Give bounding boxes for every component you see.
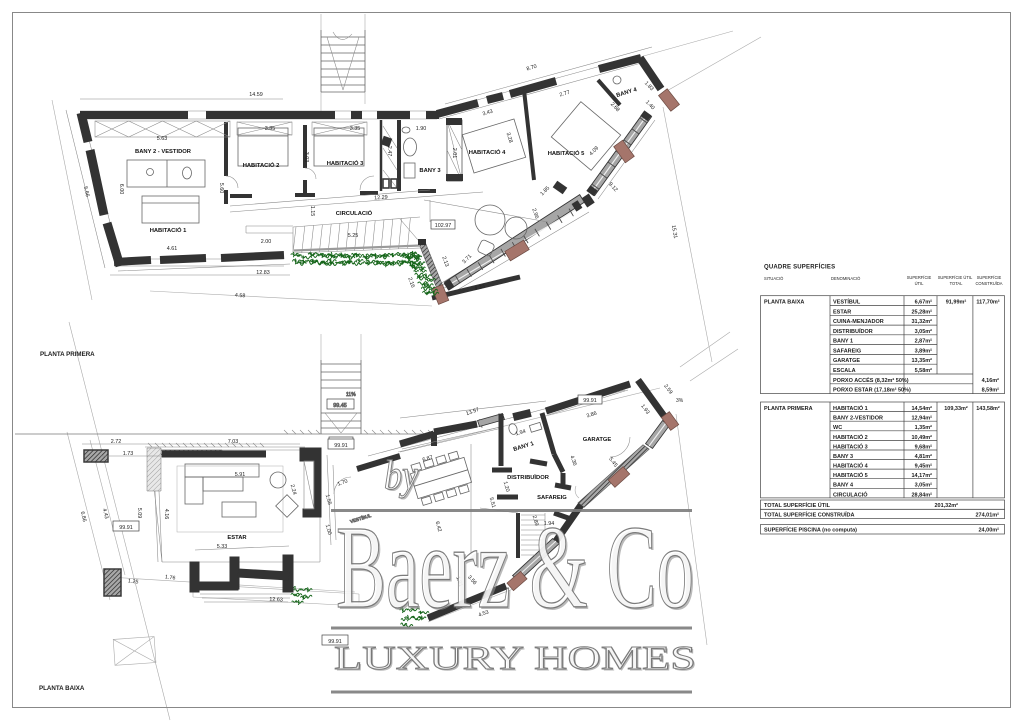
svg-text:14,54m²: 14,54m² <box>912 405 933 412</box>
svg-text:BANY 2-VESTIDOR: BANY 2-VESTIDOR <box>833 416 883 422</box>
svg-text:BANY 2 - VESTIDOR: BANY 2 - VESTIDOR <box>135 149 192 155</box>
svg-text:12.83: 12.83 <box>256 270 270 276</box>
svg-text:GARATGE: GARATGE <box>583 437 612 443</box>
svg-text:6.00: 6.00 <box>118 184 124 195</box>
svg-text:5,58m²: 5,58m² <box>915 367 933 374</box>
svg-text:PLANTA BAIXA: PLANTA BAIXA <box>39 685 85 692</box>
svg-text:1.90: 1.90 <box>416 126 427 132</box>
svg-text:BANY 4: BANY 4 <box>833 483 854 489</box>
svg-text:13,35m²: 13,35m² <box>912 357 933 364</box>
svg-text:TOTAL SUPERFÍCIE ÚTIL: TOTAL SUPERFÍCIE ÚTIL <box>764 501 831 509</box>
svg-text:PLANTA BAIXA: PLANTA BAIXA <box>764 300 804 306</box>
svg-text:14.59: 14.59 <box>249 92 263 98</box>
svg-text:2.72: 2.72 <box>111 439 122 445</box>
svg-text:3.03: 3.03 <box>303 152 309 163</box>
svg-text:4.58: 4.58 <box>235 293 246 300</box>
svg-text:12.29: 12.29 <box>374 195 388 202</box>
svg-text:8,59m²: 8,59m² <box>982 387 1000 394</box>
svg-text:9,68m²: 9,68m² <box>915 443 933 450</box>
svg-text:1.73: 1.73 <box>123 451 134 457</box>
svg-text:12,94m²: 12,94m² <box>912 415 933 422</box>
svg-text:TOTAL SUPERFÍCIE CONSTRUÏDA: TOTAL SUPERFÍCIE CONSTRUÏDA <box>764 510 854 518</box>
svg-text:WC: WC <box>833 425 842 431</box>
svg-text:99.45: 99.45 <box>333 403 347 409</box>
svg-text:GARATGE: GARATGE <box>833 358 860 364</box>
svg-text:3,05m²: 3,05m² <box>915 328 933 335</box>
svg-text:99.91: 99.91 <box>583 398 597 404</box>
svg-text:HABITACIÓ 4: HABITACIÓ 4 <box>469 148 506 156</box>
svg-text:PORXO ESTAR (17,18m² 50%): PORXO ESTAR (17,18m² 50%) <box>833 387 911 394</box>
svg-text:Baerz & Co: Baerz & Co <box>336 501 694 633</box>
svg-text:3%: 3% <box>676 398 684 404</box>
svg-text:PLANTA PRIMERA: PLANTA PRIMERA <box>764 406 813 412</box>
svg-text:HABITACIÓ 3: HABITACIÓ 3 <box>833 442 868 450</box>
svg-text:4,81m²: 4,81m² <box>915 453 933 460</box>
svg-text:by: by <box>384 453 418 499</box>
svg-text:HABITACIÓ 5: HABITACIÓ 5 <box>833 471 868 479</box>
svg-text:2.00: 2.00 <box>261 239 272 245</box>
svg-text:14,17m²: 14,17m² <box>912 472 933 479</box>
svg-text:2,87m²: 2,87m² <box>915 338 933 345</box>
svg-text:5.60: 5.60 <box>218 183 224 194</box>
svg-text:HABITACIÓ 3: HABITACIÓ 3 <box>327 159 364 167</box>
svg-text:CIRCULACIÓ: CIRCULACIÓ <box>833 490 868 498</box>
svg-text:BANY 1: BANY 1 <box>833 339 853 345</box>
svg-text:1.15: 1.15 <box>309 206 315 217</box>
svg-text:TOTAL: TOTAL <box>950 281 964 286</box>
svg-text:ESTAR: ESTAR <box>227 535 247 541</box>
svg-text:11%: 11% <box>346 392 356 398</box>
svg-text:5.91: 5.91 <box>235 472 246 478</box>
svg-text:99.91: 99.91 <box>119 525 133 531</box>
svg-text:HABITACIÓ 4: HABITACIÓ 4 <box>833 462 869 470</box>
svg-text:3.35: 3.35 <box>265 126 276 132</box>
svg-text:ESTAR: ESTAR <box>833 309 851 315</box>
svg-text:3.35: 3.35 <box>350 126 361 132</box>
svg-text:143,58m²: 143,58m² <box>976 405 1000 412</box>
svg-text:CUINA-MENJADOR: CUINA-MENJADOR <box>833 319 884 325</box>
svg-text:4,16m²: 4,16m² <box>982 377 1000 384</box>
svg-text:91,99m²: 91,99m² <box>946 299 967 306</box>
svg-text:6,67m²: 6,67m² <box>915 299 933 306</box>
svg-text:ÚTIL: ÚTIL <box>915 281 925 286</box>
svg-text:3,05m²: 3,05m² <box>915 482 933 489</box>
svg-text:HABITACIÓ 1: HABITACIÓ 1 <box>833 404 868 412</box>
svg-text:12.63: 12.63 <box>269 597 283 604</box>
svg-text:SUPERFÍCIE ÚTIL: SUPERFÍCIE ÚTIL <box>938 275 973 280</box>
svg-text:25,28m²: 25,28m² <box>912 308 933 315</box>
svg-text:DENOMINACIÓ: DENOMINACIÓ <box>831 276 860 281</box>
svg-text:3,89m²: 3,89m² <box>915 347 933 354</box>
svg-text:SUPERFÍCIE PISCINA (no computa: SUPERFÍCIE PISCINA (no computa) <box>764 526 857 534</box>
svg-text:CONSTRUÏDA: CONSTRUÏDA <box>975 281 1002 286</box>
svg-text:5.63: 5.63 <box>157 136 168 142</box>
svg-text:10,49m²: 10,49m² <box>912 434 933 441</box>
svg-text:HABITACIÓ 5: HABITACIÓ 5 <box>548 149 585 157</box>
svg-text:31,32m²: 31,32m² <box>912 318 933 325</box>
svg-text:2.47: 2.47 <box>386 146 392 157</box>
svg-text:99.91: 99.91 <box>334 443 348 449</box>
svg-text:201,32m²: 201,32m² <box>934 502 958 509</box>
svg-text:4.16: 4.16 <box>163 509 169 520</box>
svg-text:28,84m²: 28,84m² <box>912 491 933 498</box>
svg-text:1,35m²: 1,35m² <box>915 424 933 431</box>
svg-text:274,01m²: 274,01m² <box>975 511 999 518</box>
svg-text:PORXO ACCÉS (8,32m² 50%): PORXO ACCÉS (8,32m² 50%) <box>833 376 909 384</box>
svg-text:109,33m²: 109,33m² <box>944 405 968 412</box>
svg-text:HABITACIÓ 2: HABITACIÓ 2 <box>833 433 868 441</box>
svg-text:5.25: 5.25 <box>348 233 359 239</box>
svg-text:SAFAREIG: SAFAREIG <box>833 348 861 354</box>
svg-text:HABITACIÓ 2: HABITACIÓ 2 <box>243 161 280 169</box>
svg-text:CIRCULACIÓ: CIRCULACIÓ <box>336 209 373 217</box>
svg-text:4.61: 4.61 <box>167 246 178 252</box>
svg-text:DISTRIBUÏDOR: DISTRIBUÏDOR <box>507 474 550 481</box>
svg-text:VESTÍBUL: VESTÍBUL <box>833 298 861 306</box>
svg-text:2.01: 2.01 <box>451 148 457 159</box>
svg-text:117,70m²: 117,70m² <box>976 299 999 306</box>
svg-text:5.09: 5.09 <box>136 508 142 519</box>
svg-text:24,00m²: 24,00m² <box>979 527 1000 534</box>
svg-text:SITUACIÓ: SITUACIÓ <box>764 276 783 281</box>
svg-text:HABITACIÓ 1: HABITACIÓ 1 <box>150 226 187 234</box>
svg-text:ESCALA: ESCALA <box>833 368 856 374</box>
svg-text:5.33: 5.33 <box>217 544 228 550</box>
svg-text:BANY 3: BANY 3 <box>419 168 441 174</box>
svg-text:PLANTA PRIMERA: PLANTA PRIMERA <box>40 351 95 358</box>
svg-text:LUXURY HOMES: LUXURY HOMES <box>334 640 696 677</box>
svg-text:BANY 3: BANY 3 <box>833 454 853 460</box>
svg-text:102.97: 102.97 <box>435 223 452 229</box>
svg-text:QUADRE SUPERFÍCIES: QUADRE SUPERFÍCIES <box>764 263 835 271</box>
svg-text:9,45m²: 9,45m² <box>915 463 933 470</box>
svg-text:7.03: 7.03 <box>228 439 239 445</box>
svg-text:SUPERFÍCIE: SUPERFÍCIE <box>907 275 932 280</box>
svg-text:DISTRIBUÏDOR: DISTRIBUÏDOR <box>833 328 873 335</box>
svg-text:SUPERFÍCIE: SUPERFÍCIE <box>977 275 1002 280</box>
